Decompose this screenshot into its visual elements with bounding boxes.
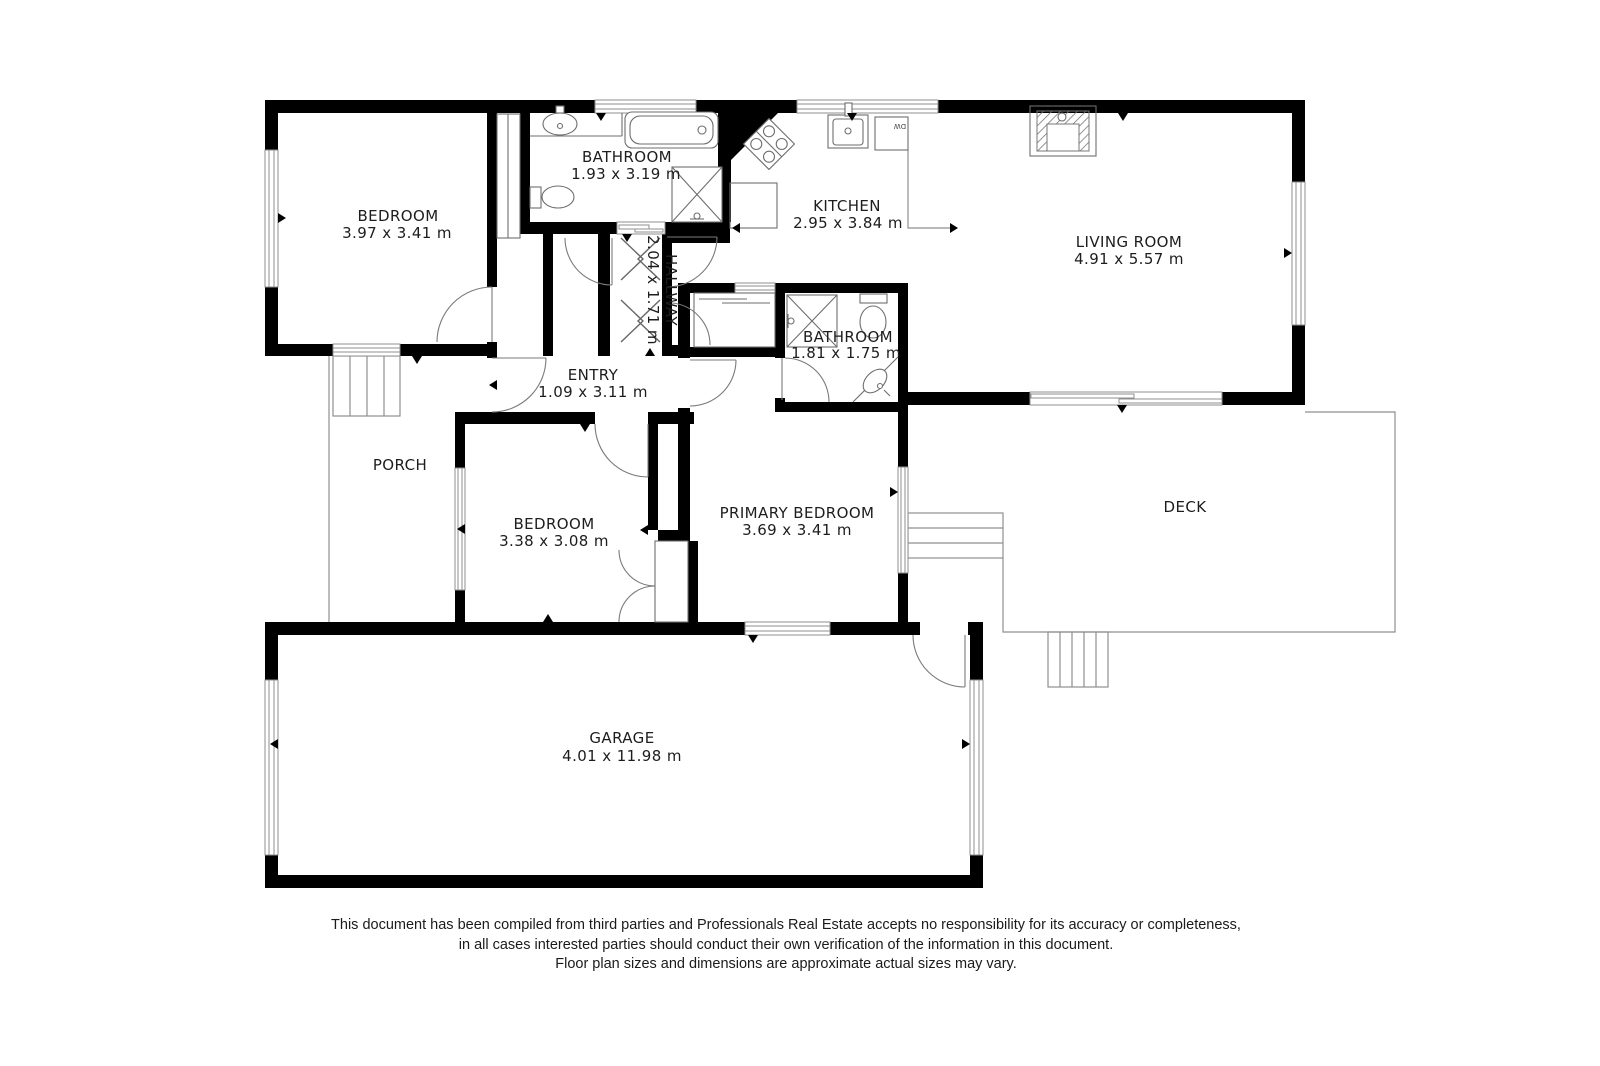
room-name: GARAGE [589,729,654,747]
window-icon [797,100,938,113]
room-label-bathroom-2: BATHROOM 1.81 x 1.75 m [791,328,901,362]
wall-segment [775,283,908,293]
fireplace-icon [1030,106,1096,156]
wall-segment [487,342,497,358]
sliding-closet-icon [694,293,775,347]
closet-double-doors-icon [619,550,655,622]
wall-segment [658,530,690,541]
wall-segment [455,412,465,468]
window-icon [595,100,696,113]
room-label-kitchen: KITCHEN 2.95 x 3.84 m [793,197,903,232]
wall-segment [265,622,278,680]
wall-segment [520,113,530,228]
window-icon [735,283,775,293]
wall-segment [775,402,908,412]
window-icon [265,150,278,287]
corner-sink-icon [853,357,898,402]
wall-segment [598,228,610,356]
room-name: BEDROOM [513,515,594,533]
wall-segment [696,100,798,113]
wall-segment [1222,392,1305,405]
wall-segment [455,590,465,622]
pocket-door-icon [617,222,665,234]
dishwasher-label: DW [894,122,906,130]
wall-segment [898,573,908,622]
room-name: HALLWAY [662,254,680,326]
window-icon [265,680,278,855]
room-label-deck: DECK [1164,498,1208,516]
window-icon [333,344,400,356]
wall-segment [898,412,908,467]
room-dims: 3.38 x 3.08 m [499,532,609,550]
room-label-porch: PORCH [373,456,427,474]
wall-segment [690,347,775,357]
porch-outline [329,356,400,622]
wall-segment [543,228,553,356]
room-name: DECK [1164,498,1208,516]
room-label-living-room: LIVING ROOM 4.91 x 5.57 m [1074,233,1184,268]
wall-segment [265,622,745,635]
disclaimer-line-1: This document has been compiled from thi… [0,916,1572,936]
room-dims: 2.04 x 1.71 m [644,235,662,345]
window-icon [970,680,983,855]
wall-segment [688,541,698,622]
wall-segment [775,283,785,358]
wall-segment [665,222,730,243]
deck-stairs-icon [1048,632,1108,687]
room-label-bathroom-1: BATHROOM 1.93 x 3.19 m [571,148,681,183]
room-dims: 2.95 x 3.84 m [793,214,903,232]
room-dims: 4.91 x 5.57 m [1074,250,1184,268]
disclaimer: This document has been compiled from thi… [0,916,1572,975]
toilet-icon [530,186,574,208]
window-icon [745,622,830,635]
room-dims: 3.97 x 3.41 m [342,224,452,242]
room-dims: 1.09 x 3.11 m [538,383,648,401]
wall-segment [970,622,983,680]
door-bedroom-1 [437,287,492,342]
wall-segment [690,283,735,293]
room-name: LIVING ROOM [1076,233,1182,251]
wall-segment [908,392,1030,405]
room-dims: 3.69 x 3.41 m [742,521,852,539]
room-label-primary-bedroom: PRIMARY BEDROOM 3.69 x 3.41 m [720,504,875,539]
room-dims: 1.93 x 3.19 m [571,165,681,183]
door-garage [913,635,965,687]
wall-segment [648,412,694,424]
wall-segment [400,344,497,356]
room-label-garage: GARAGE 4.01 x 11.98 m [562,729,682,765]
room-label-bedroom-2: BEDROOM 3.38 x 3.08 m [499,515,609,550]
dishwasher-icon: DW [875,117,908,150]
disclaimer-line-2: in all cases interested parties should c… [0,936,1572,956]
sliding-door-icon [1030,392,1222,405]
room-labels: BEDROOM 3.97 x 3.41 m BATHROOM 1.93 x 3.… [342,148,1207,765]
window-icon [1292,182,1305,325]
door-bedroom-2 [595,424,648,477]
wall-segment [455,412,595,424]
door-bathroom-2 [782,358,829,402]
wall-segment [265,344,333,356]
porch-steps-icon [333,356,400,416]
room-name: ENTRY [568,366,619,384]
room-label-hallway: HALLWAY 2.04 x 1.71 m [644,235,680,345]
closet-icon [655,541,688,622]
wall-segment [1292,100,1305,182]
wall-segment [487,113,497,287]
wardrobe-icon [497,114,520,238]
wall-segment [678,408,690,530]
deck-steps-icon [908,513,1003,558]
room-name: BATHROOM [582,148,672,166]
wall-segment [648,424,658,530]
wall-segment [265,100,278,150]
disclaimer-line-3: Floor plan sizes and dimensions are appr… [0,955,1572,975]
room-dims: 4.01 x 11.98 m [562,747,682,765]
wall-segment [938,100,1305,113]
room-name: KITCHEN [813,197,881,215]
bathtub-icon [625,112,718,148]
room-name: PRIMARY BEDROOM [720,504,875,522]
wall-segment [265,100,595,113]
room-name: PORCH [373,456,427,474]
room-label-bedroom-1: BEDROOM 3.97 x 3.41 m [342,207,452,242]
room-name: BEDROOM [357,207,438,225]
room-dims: 1.81 x 1.75 m [791,344,901,362]
wall-segment [830,622,920,635]
floor-plan: DW BEDROO [0,0,1600,1066]
window-icon [898,467,908,573]
door-primary-bedroom [690,360,736,406]
room-label-entry: ENTRY 1.09 x 3.11 m [538,366,648,401]
